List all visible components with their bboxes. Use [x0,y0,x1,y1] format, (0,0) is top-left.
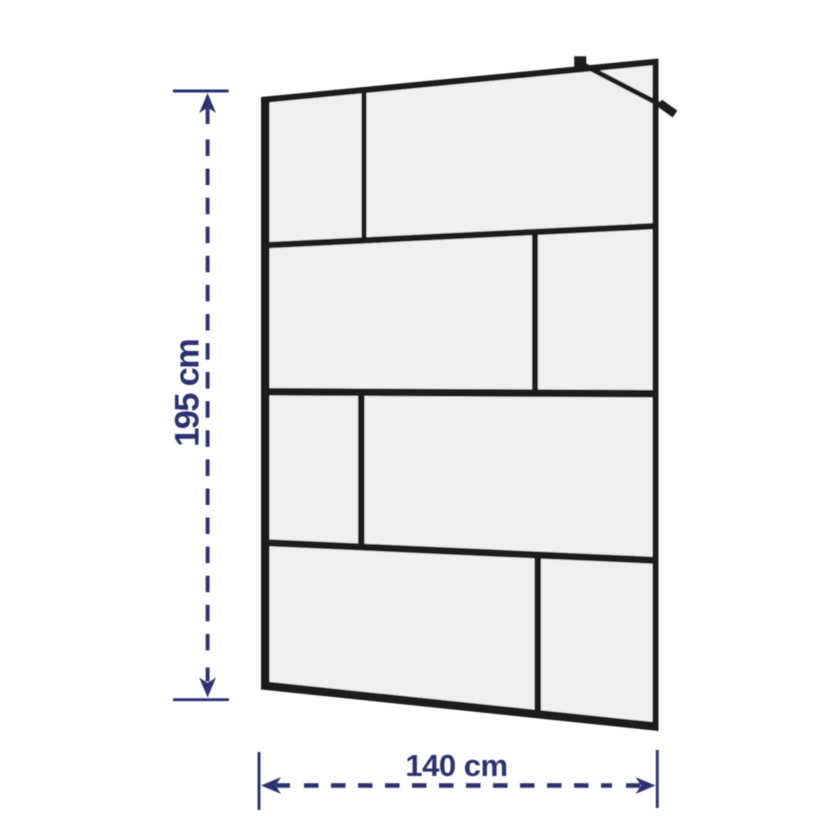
svg-text:140 cm: 140 cm [405,748,507,783]
svg-text:195 cm: 195 cm [169,340,207,447]
